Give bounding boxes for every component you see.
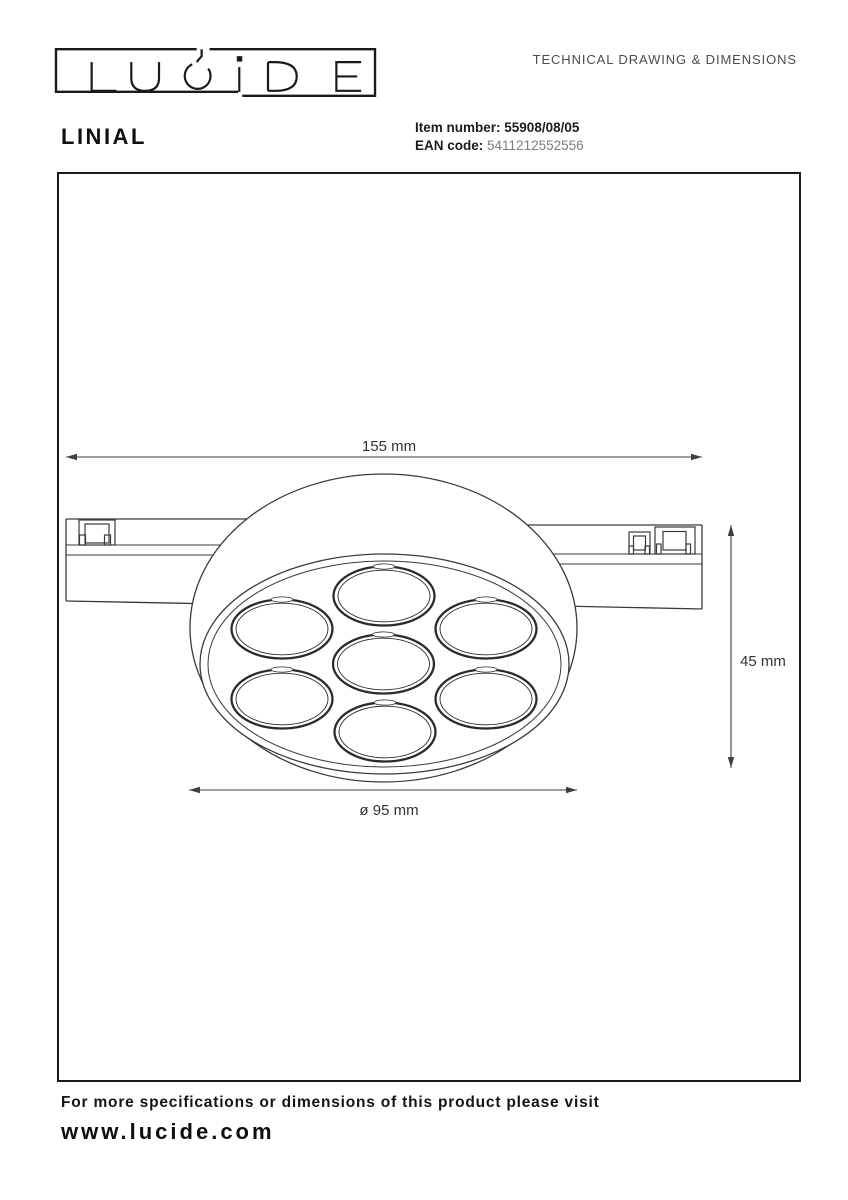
lucide-logo [54,48,377,98]
dimension-width: 155 mm [66,438,702,460]
track-connector-right-large [655,527,695,554]
item-number-row: Item number: 55908/08/05 [415,119,584,137]
drawing-frame: 155 mm [57,172,801,1082]
dimension-diameter: ø 95 mm [189,787,577,819]
item-number-label: Item number: [415,120,501,135]
dimension-height: 45 mm [728,525,786,768]
technical-drawing: 155 mm [59,174,799,1080]
track-connector-right-small [629,532,650,554]
document-title: TECHNICAL DRAWING & DIMENSIONS [533,52,797,67]
ean-value: 5411212552556 [487,138,584,153]
logo-letters [92,49,361,92]
website-link[interactable]: www.lucide.com [61,1119,600,1145]
dimension-width-label: 155 mm [362,438,416,455]
logo-i-dot [237,56,242,61]
product-name: LINIAL [61,124,147,150]
item-number-value: 55908/08/05 [504,120,579,135]
footer-note: For more specifications or dimensions of… [61,1094,600,1112]
ean-label: EAN code: [415,138,483,153]
spec-sheet-page: TECHNICAL DRAWING & DIMENSIONS LINIAL It… [0,0,848,1200]
dimension-diameter-label: ø 95 mm [359,802,418,819]
logo-frame [56,49,375,96]
track-connector-left [79,520,115,545]
ean-row: EAN code: 5411212552556 [415,137,584,155]
product-meta: Item number: 55908/08/05 EAN code: 54112… [415,119,584,154]
dimension-height-label: 45 mm [740,653,786,670]
footer: For more specifications or dimensions of… [61,1094,600,1145]
